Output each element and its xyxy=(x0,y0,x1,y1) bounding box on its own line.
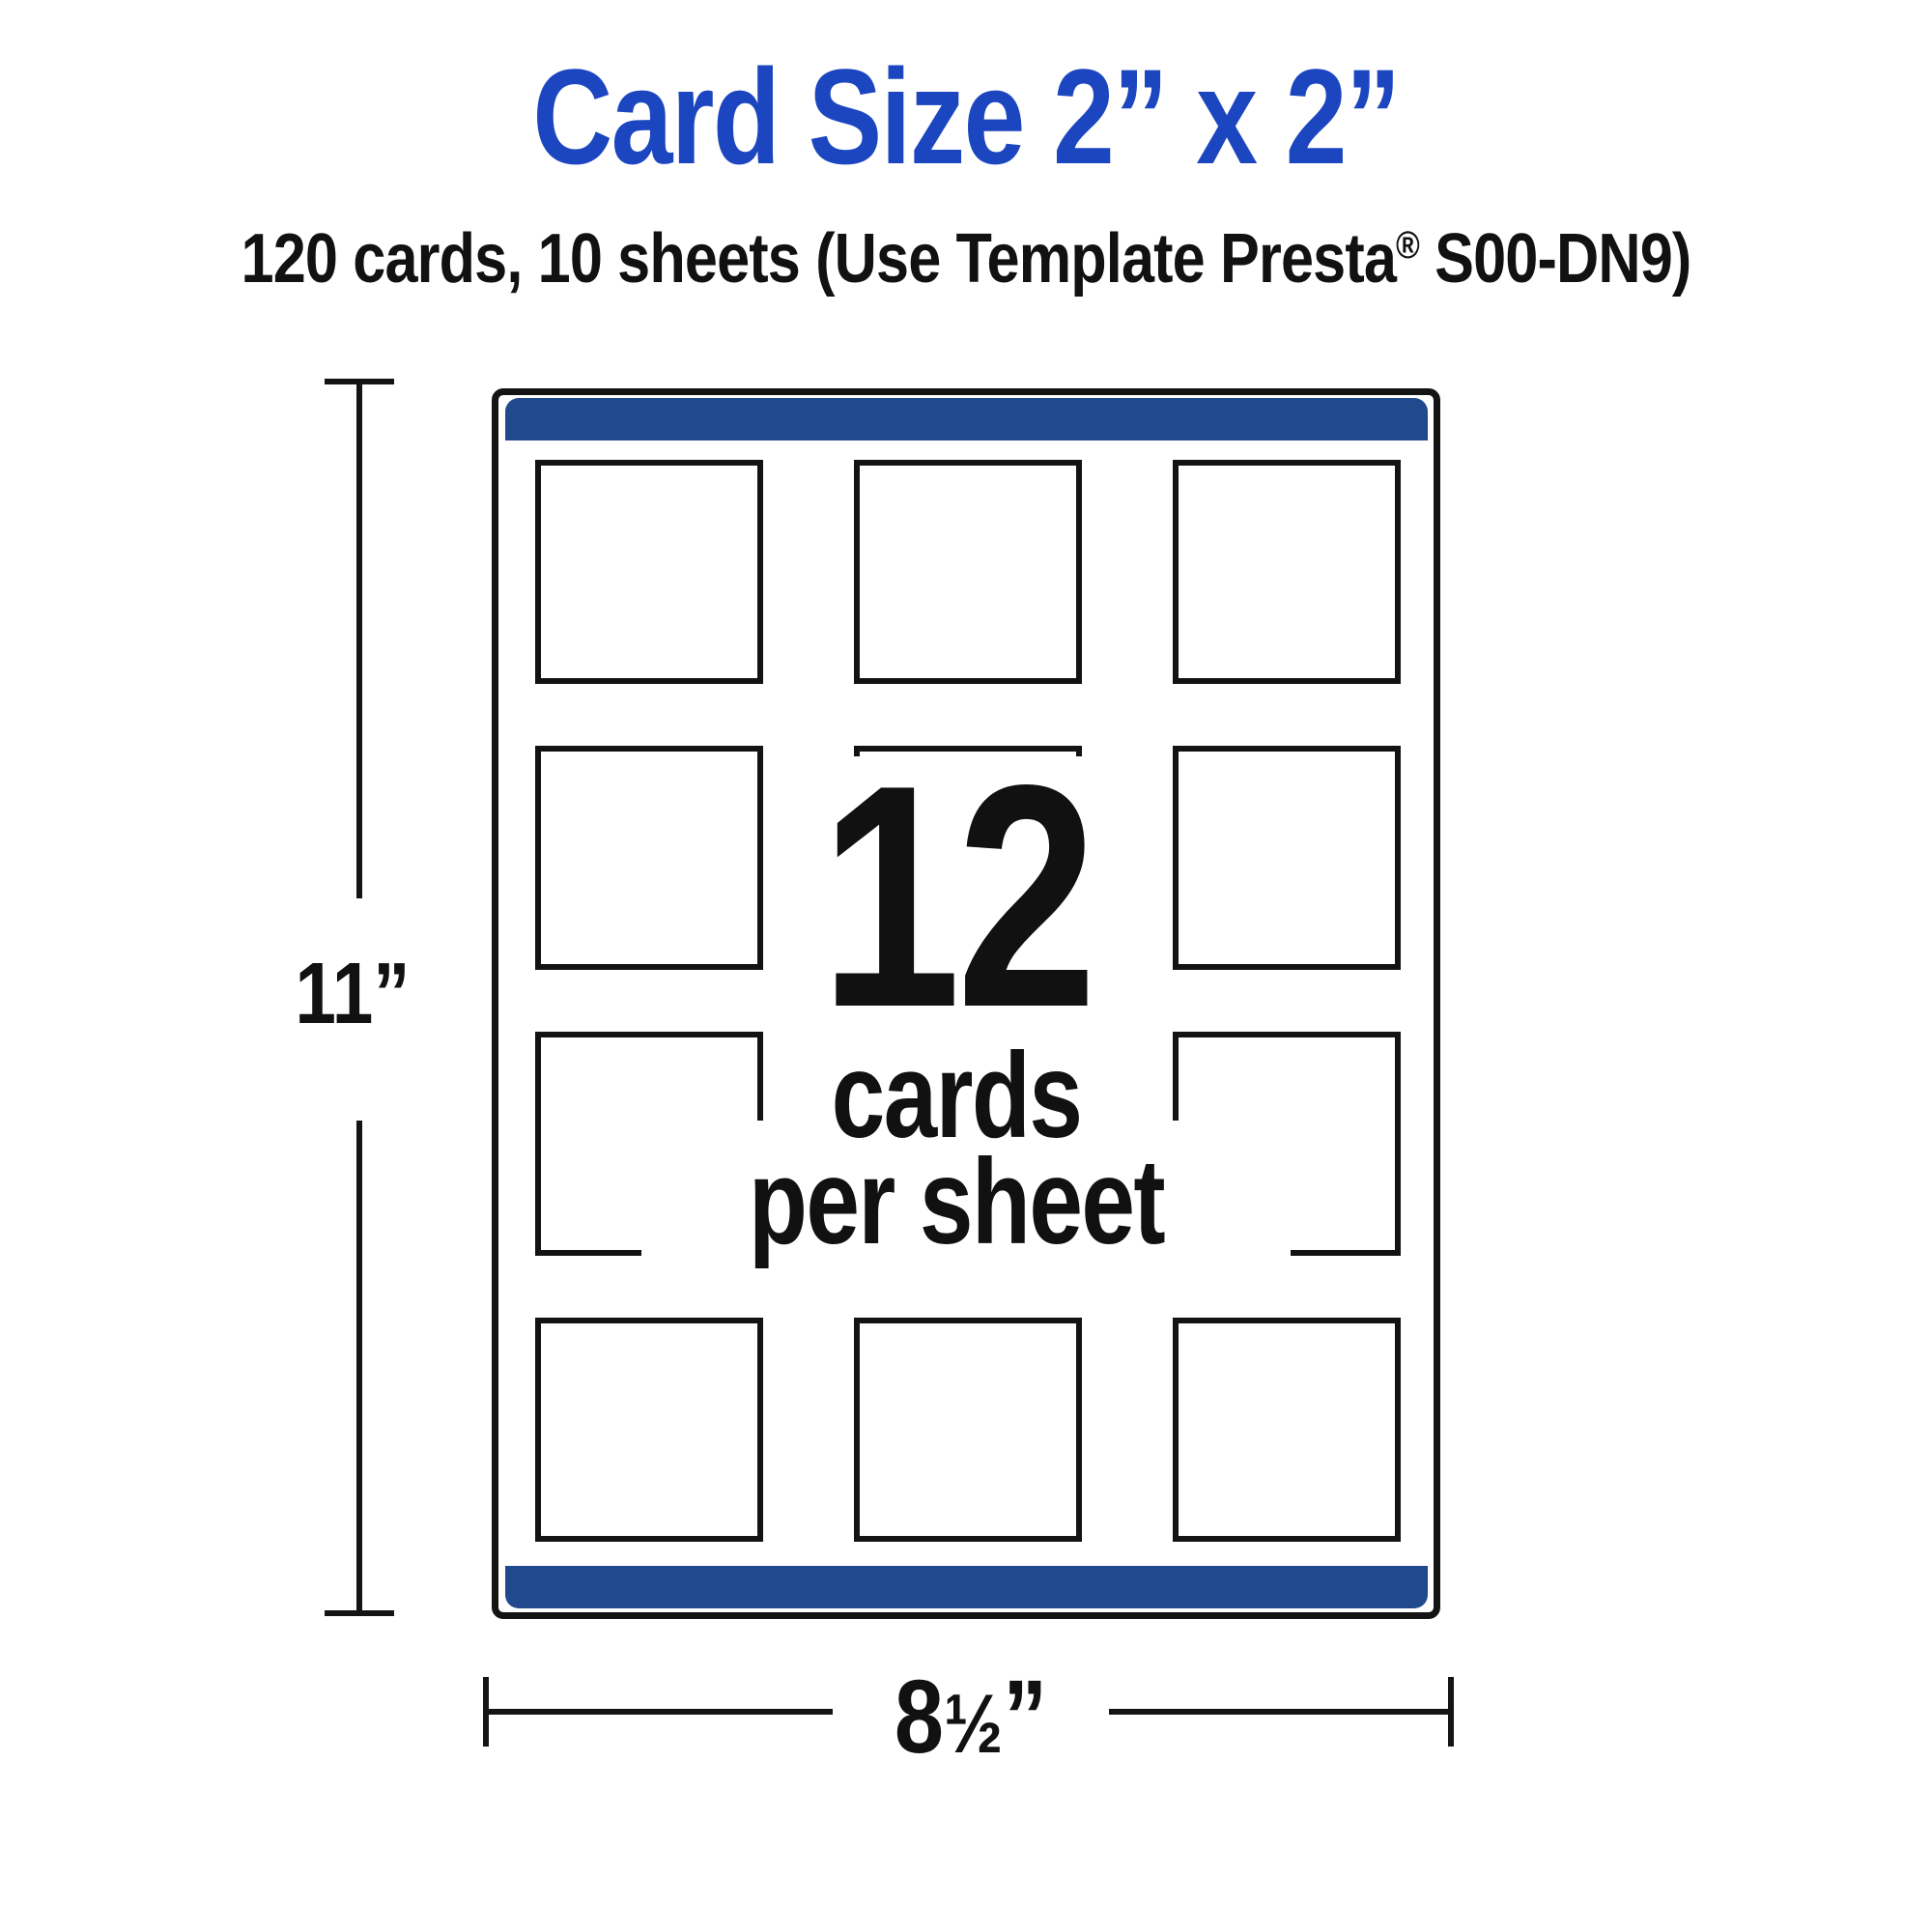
caption-line-cards: cards xyxy=(686,1043,1227,1150)
subtitle-prefix: 120 cards, 10 sheets (Use Template Prest… xyxy=(241,220,1396,298)
page-subtitle: 120 cards, 10 sheets (Use Template Prest… xyxy=(145,224,1787,294)
height-dimension-line-upper xyxy=(356,379,362,898)
card-slot xyxy=(535,1318,763,1542)
registered-trademark-symbol: ® xyxy=(1396,224,1419,267)
card-slot xyxy=(854,460,1082,684)
sheet-height-label: 11” xyxy=(270,951,435,1037)
width-inch-mark: ” xyxy=(1003,1658,1047,1775)
card-slot xyxy=(1173,1318,1401,1542)
height-dimension-line-lower xyxy=(356,1121,362,1616)
sheet-bottom-blue-bar xyxy=(505,1566,1428,1608)
cards-per-sheet-caption: cards per sheet xyxy=(686,1043,1227,1256)
template-diagram-page: { "title": { "text": "Card Size 2” x 2”"… xyxy=(0,0,1932,1932)
width-dimension-right-cap xyxy=(1448,1677,1454,1747)
page-title: Card Size 2” x 2” xyxy=(174,49,1758,185)
card-slot xyxy=(854,1318,1082,1542)
card-slot xyxy=(535,460,763,684)
card-slot xyxy=(1173,746,1401,970)
width-dimension-line-left xyxy=(486,1709,833,1715)
width-dimension-line-right xyxy=(1109,1709,1451,1715)
subtitle-suffix: S00-DN9) xyxy=(1419,220,1690,298)
height-dimension-bottom-cap xyxy=(325,1610,394,1616)
width-fraction: ½ xyxy=(944,1678,1003,1771)
sheet-width-label: 8½” xyxy=(807,1664,1135,1769)
card-slot xyxy=(1173,460,1401,684)
cards-per-sheet-count: 12 xyxy=(724,738,1188,1055)
sheet-top-blue-bar xyxy=(505,398,1428,440)
caption-line-per-sheet: per sheet xyxy=(686,1150,1227,1256)
width-whole-number: 8 xyxy=(895,1658,944,1775)
